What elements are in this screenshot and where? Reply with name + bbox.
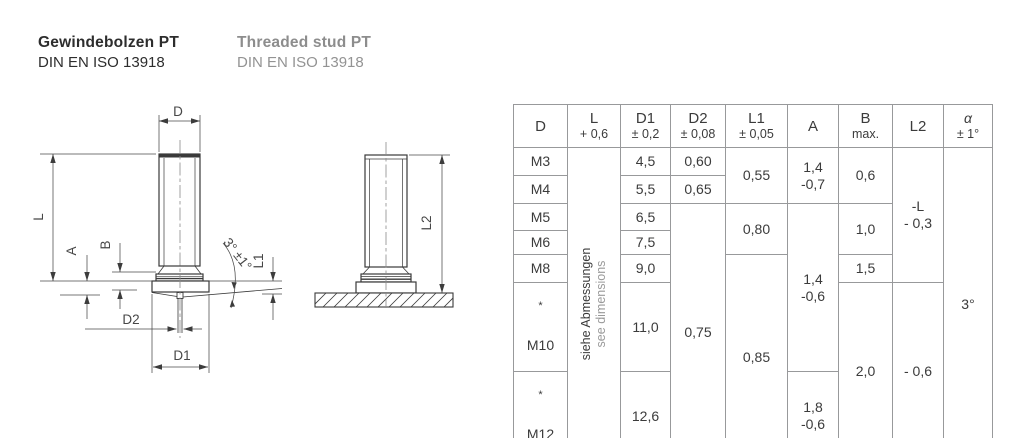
- cell-size-M8: M8: [514, 255, 568, 283]
- cell-D2-M4: 0,65: [671, 176, 726, 204]
- standard-ref-de: DIN EN ISO 13918: [38, 53, 179, 73]
- footnote-star: *: [514, 391, 567, 400]
- col-header-A: A: [788, 105, 839, 148]
- dim-label-D: D: [173, 104, 183, 119]
- col-header-L: L+ 0,6: [568, 105, 621, 148]
- cell-D1-M12: 12,6: [621, 372, 671, 438]
- cell-size-M5: M5: [514, 204, 568, 231]
- cell-A-M3-M4: 1,4 -0,7: [788, 148, 839, 204]
- cell-D2-M5-M12: 0,75: [671, 204, 726, 438]
- dim-label-D2: D2: [122, 312, 139, 327]
- cell-D2-M3: 0,60: [671, 148, 726, 176]
- see-dimensions-note: siehe Abmessungen see dimensions: [579, 248, 609, 361]
- header-row: D L+ 0,6 D1± 0,2 D2± 0,08 L1± 0,05 A Bma…: [514, 105, 993, 148]
- base-plate: [312, 293, 458, 307]
- footnote-star: *: [514, 302, 567, 311]
- cell-alpha-all: 3°: [944, 148, 993, 438]
- cell-D1-M4: 5,5: [621, 176, 671, 204]
- cell-B-M3-M4: 0,6: [839, 148, 893, 204]
- catalog-page: Gewindebolzen PT DIN EN ISO 13918 Thread…: [0, 0, 1024, 438]
- cell-D1-M5: 6,5: [621, 204, 671, 231]
- title-block-english: Threaded stud PT DIN EN ISO 13918: [237, 33, 371, 73]
- dimensions-table: D L+ 0,6 D1± 0,2 D2± 0,08 L1± 0,05 A Bma…: [513, 104, 993, 438]
- cell-L-note: siehe Abmessungen see dimensions: [568, 148, 621, 438]
- cell-D1-M10: 11,0: [621, 283, 671, 372]
- col-header-D: D: [514, 105, 568, 148]
- dim-label-angle: 3° ±1°: [220, 235, 255, 273]
- cell-B-M10-M12: 2,0: [839, 283, 893, 438]
- standard-ref-en: DIN EN ISO 13918: [237, 53, 371, 73]
- row-M3: M3 siehe Abmessungen see dimensions 4,5 …: [514, 148, 993, 176]
- col-header-D1: D1± 0,2: [621, 105, 671, 148]
- cell-D1-M3: 4,5: [621, 148, 671, 176]
- product-title-en: Threaded stud PT: [237, 33, 371, 53]
- dim-label-B: B: [98, 240, 113, 249]
- cell-L1-M5-M6: 0,80: [726, 204, 788, 255]
- title-block-german: Gewindebolzen PT DIN EN ISO 13918: [38, 33, 179, 73]
- dim-label-L: L: [31, 213, 46, 221]
- col-header-alpha: α± 1°: [944, 105, 993, 148]
- stud-outline: [152, 154, 282, 333]
- dim-label-L1: L1: [251, 253, 266, 268]
- dim-label-A: A: [64, 246, 79, 255]
- cell-B-M8: 1,5: [839, 255, 893, 283]
- cell-B-M5-M6: 1,0: [839, 204, 893, 255]
- cell-size-M10: * M10: [514, 283, 568, 372]
- col-header-L1: L1± 0,05: [726, 105, 788, 148]
- cell-L2-M3-M8: -L - 0,3: [893, 148, 944, 283]
- dim-label-L2: L2: [419, 215, 434, 230]
- cell-A-M12: 1,8 -0,6: [788, 372, 839, 438]
- cell-size-M12: * M12: [514, 372, 568, 438]
- front-view-drawing: D L A B D2 D1 3° ±1° L1: [30, 95, 290, 380]
- cell-A-M5-M10: 1,4 -0,6: [788, 204, 839, 372]
- cell-size-M4: M4: [514, 176, 568, 204]
- cell-L2-M10-M12: - 0,6: [893, 283, 944, 438]
- cell-L1-M8-M12: 0,85: [726, 255, 788, 438]
- col-header-L2: L2: [893, 105, 944, 148]
- welded-view-drawing: L2: [300, 130, 480, 315]
- cell-L1-M3-M4: 0,55: [726, 148, 788, 204]
- cell-size-M6: M6: [514, 231, 568, 255]
- dim-label-D1: D1: [173, 348, 190, 363]
- cell-D1-M6: 7,5: [621, 231, 671, 255]
- col-header-B: Bmax.: [839, 105, 893, 148]
- col-header-D2: D2± 0,08: [671, 105, 726, 148]
- cell-size-M3: M3: [514, 148, 568, 176]
- product-title-de: Gewindebolzen PT: [38, 33, 179, 53]
- cell-D1-M8: 9,0: [621, 255, 671, 283]
